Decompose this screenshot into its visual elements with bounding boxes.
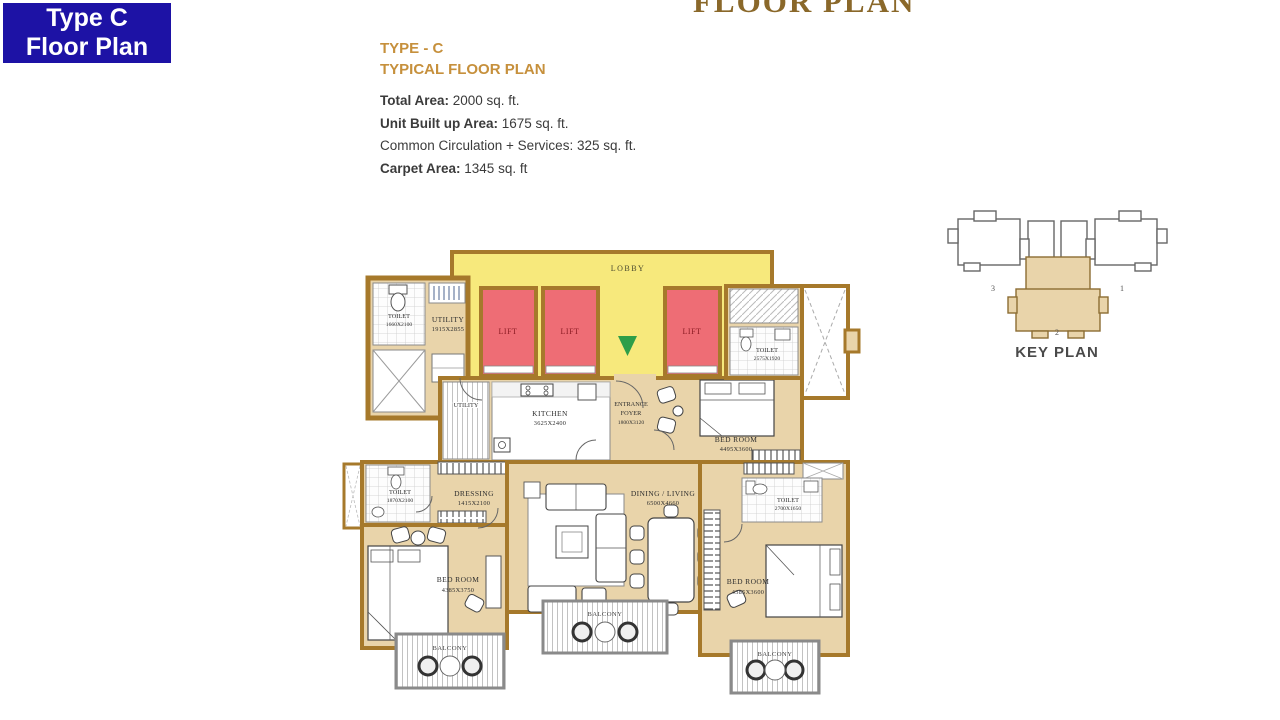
- key-plan-label-1: 1: [1120, 284, 1124, 293]
- balcony-chair-icon: [573, 623, 591, 641]
- key-plan-label-3: 3: [991, 284, 995, 293]
- coffee-table-icon: [556, 526, 588, 558]
- key-plan-wing-2-highlight: [1008, 257, 1108, 338]
- service-shaft: [802, 286, 848, 398]
- dining-chair-icon: [630, 550, 644, 564]
- balcony-table-icon: [440, 656, 460, 676]
- wardrobe-icon: [438, 462, 508, 474]
- toilet3-label: TOILET: [389, 489, 411, 496]
- toilet4-dim: 2700X1650: [775, 506, 802, 512]
- side-table-icon: [411, 531, 425, 545]
- lift-3-label: LIFT: [683, 327, 702, 336]
- plan-subtitle: TYPICAL FLOOR PLAN: [380, 59, 546, 80]
- floor-plan-drawing: LOBBY LIFT LIFT LIFT TOILET 1660X2100 UT…: [340, 240, 920, 700]
- balcony-center: BALCONY: [543, 601, 667, 653]
- lift-1-label: LIFT: [499, 327, 518, 336]
- built-up-area-row: Unit Built up Area: 1675 sq. ft.: [380, 113, 636, 136]
- balcony-chair-icon: [747, 661, 765, 679]
- carpet-area-row: Carpet Area: 1345 sq. ft: [380, 158, 636, 181]
- foyer-dim: 1800X3120: [618, 420, 645, 426]
- bedroom1-label: BED ROOM: [715, 435, 758, 444]
- dining-living: DINING / LIVING 6500X4660: [507, 462, 712, 615]
- side-table-icon: [673, 406, 683, 416]
- badge-line1: Type C: [46, 4, 128, 33]
- key-plan-wing-1: [1095, 219, 1157, 265]
- wardrobe-icon: [744, 463, 794, 474]
- area-details: Total Area: 2000 sq. ft. Unit Built up A…: [380, 90, 636, 180]
- balcony-right: BALCONY: [731, 641, 819, 693]
- bedroom3-label: BED ROOM: [727, 577, 770, 586]
- key-plan-drawing: 3 1 2 KEY PLAN: [940, 205, 1175, 370]
- balcony-table-icon: [595, 622, 615, 642]
- top-band: UTILITY KITCHEN 3625X2400 ENTRANCE FOYER…: [440, 374, 802, 462]
- balcony-left: BALCONY: [396, 634, 504, 688]
- dining-table-icon: [648, 518, 694, 602]
- lift-1: LIFT: [481, 288, 536, 376]
- toilet4-label: TOILET: [777, 497, 799, 504]
- side-table-icon: [524, 482, 540, 498]
- wardrobe-icon: [438, 511, 486, 523]
- balcony-center-label: BALCONY: [588, 611, 623, 618]
- toilet2-label: TOILET: [756, 347, 778, 354]
- utility2-label: UTILITY: [454, 402, 479, 409]
- key-plan: 3 1 2 KEY PLAN: [940, 205, 1175, 370]
- badge-line2: Floor Plan: [26, 33, 148, 62]
- wardrobe-icon: [704, 510, 720, 610]
- dressing-dim: 1415X2100: [458, 500, 490, 507]
- key-plan-wing-3: [958, 219, 1020, 265]
- utility1-label: UTILITY: [432, 315, 465, 324]
- dining-living-label: DINING / LIVING: [631, 489, 696, 498]
- common-circulation-row: Common Circulation + Services: 325 sq. f…: [380, 135, 636, 158]
- balcony-chair-icon: [419, 657, 437, 675]
- fridge-icon: [578, 384, 596, 400]
- balcony-chair-icon: [463, 657, 481, 675]
- hob-icon: [521, 384, 553, 396]
- desk-icon: [486, 556, 501, 608]
- wardrobe-icon: [752, 450, 800, 461]
- bedroom2-label: BED ROOM: [437, 575, 480, 584]
- dining-chair-icon: [630, 574, 644, 588]
- bedroom2-dim: 4385X3750: [442, 587, 474, 594]
- mid-left-block: TOILET 1870X2100 DRESSING 1415X2100: [344, 462, 508, 528]
- bedroom1-dim: 4495X3600: [720, 446, 752, 453]
- dressing-label: DRESSING: [454, 489, 494, 498]
- balcony-left-label: BALCONY: [433, 645, 468, 652]
- kitchen-dim: 3625X2400: [534, 420, 566, 427]
- bedroom3-block: TOILET 2700X1650 BED ROOM 4385X3600: [700, 462, 848, 655]
- toilet2-dim: 2575X1920: [754, 356, 781, 362]
- plan-type-label: TYPE - C: [380, 38, 546, 59]
- page-title: FLOOR PLAN: [693, 0, 915, 20]
- toilet1-label: TOILET: [388, 313, 410, 320]
- toilet3-dim: 1870X2100: [387, 498, 414, 504]
- lift-3: LIFT: [665, 288, 720, 376]
- toilet1-dim: 1660X2100: [386, 322, 413, 328]
- sink-icon: [494, 438, 510, 452]
- total-area-row: Total Area: 2000 sq. ft.: [380, 90, 636, 113]
- kitchen-label: KITCHEN: [532, 409, 568, 418]
- bedroom2: BED ROOM 4385X3750: [362, 525, 507, 648]
- key-plan-label-2: 2: [1055, 328, 1059, 337]
- lift-2-label: LIFT: [561, 327, 580, 336]
- dining-living-dim: 6500X4660: [647, 500, 679, 507]
- lobby-label: LOBBY: [611, 264, 646, 273]
- balcony-chair-icon: [785, 661, 803, 679]
- lift-2: LIFT: [543, 288, 598, 376]
- balcony-chair-icon: [619, 623, 637, 641]
- key-plan-title: KEY PLAN: [1015, 344, 1099, 361]
- balcony-table-icon: [765, 660, 785, 680]
- foyer-label-1: ENTRANCE: [614, 401, 648, 408]
- balcony-right-label: BALCONY: [758, 651, 793, 658]
- plan-header: TYPE - C TYPICAL FLOOR PLAN: [380, 38, 546, 80]
- bedroom3-dim: 4385X3600: [732, 589, 764, 596]
- foyer-label-2: FOYER: [621, 410, 642, 417]
- type-c-badge: Type C Floor Plan: [3, 3, 171, 63]
- dining-chair-icon: [630, 526, 644, 540]
- utility1-dim: 1915X2855: [432, 326, 464, 333]
